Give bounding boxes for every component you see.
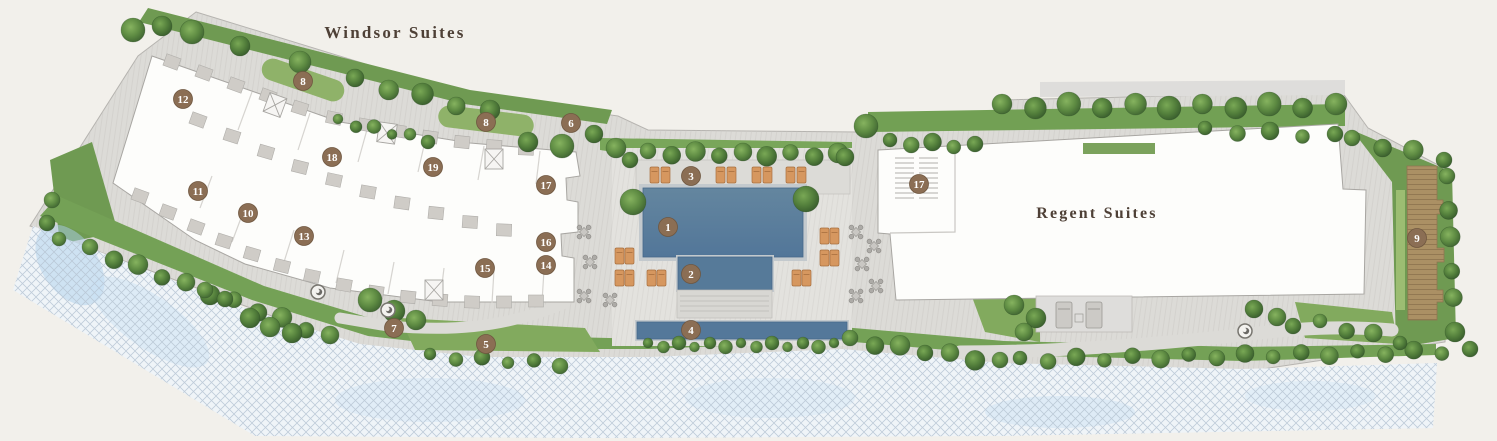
tree — [829, 338, 839, 348]
sun-lounger — [820, 250, 829, 266]
tree — [240, 308, 260, 328]
tree — [690, 342, 700, 352]
tree — [82, 239, 98, 255]
balcony — [428, 206, 444, 220]
balcony — [464, 296, 479, 309]
sun-lounger — [727, 167, 736, 183]
balcony — [400, 290, 416, 304]
spa-circle-core — [385, 307, 389, 311]
tree — [585, 125, 603, 143]
tree — [1157, 96, 1181, 120]
tree — [1344, 130, 1360, 146]
tree — [105, 251, 123, 269]
regent-suites-label: Regent Suites — [1036, 205, 1157, 222]
elevator-core-icon — [425, 280, 443, 300]
tree — [552, 358, 568, 374]
sun-lounger — [820, 228, 829, 244]
tree — [793, 186, 819, 212]
marker-17-number: 17 — [541, 180, 553, 192]
cafe-table-icon — [849, 289, 863, 303]
tree — [1057, 92, 1081, 116]
tree — [1378, 347, 1394, 363]
tree — [783, 342, 793, 352]
tree — [1015, 323, 1033, 341]
tree — [1152, 350, 1170, 368]
marker-5-number: 5 — [483, 339, 489, 351]
tree — [883, 133, 897, 147]
tree — [751, 341, 763, 353]
tree — [1293, 344, 1309, 360]
site-plan-page: 12345678891011121314151617171819 Windsor… — [0, 0, 1497, 441]
tree — [1209, 350, 1225, 366]
tree — [1013, 351, 1027, 365]
tree — [1351, 344, 1365, 358]
tree — [1004, 295, 1024, 315]
hedge-beside-deck — [1396, 190, 1405, 310]
sun-lounger — [752, 167, 761, 183]
cafe-table-icon — [849, 225, 863, 239]
marker-2-number: 2 — [688, 269, 694, 281]
cafe-table-icon — [855, 257, 869, 271]
marker-13-number: 13 — [299, 231, 311, 243]
tree — [121, 18, 145, 42]
tree — [854, 114, 878, 138]
sun-lounger — [625, 270, 634, 286]
marker-7-number: 7 — [391, 323, 397, 335]
marker-14-number: 14 — [541, 260, 553, 272]
sun-lounger — [615, 270, 624, 286]
tree — [686, 142, 706, 162]
sun-lounger — [830, 250, 839, 266]
tree — [941, 344, 959, 362]
tree — [1405, 341, 1423, 359]
sun-lounger — [802, 270, 811, 286]
marker-6-number: 6 — [568, 118, 574, 130]
tree — [52, 232, 66, 246]
tree — [367, 120, 381, 134]
marker-16-number: 16 — [541, 237, 553, 249]
tree — [1436, 152, 1452, 168]
sun-lounger — [615, 248, 624, 264]
tree — [1364, 324, 1382, 342]
marker-18-number: 18 — [327, 152, 339, 164]
cafe-table-icon — [869, 279, 883, 293]
tree — [924, 133, 942, 151]
tree — [606, 138, 626, 158]
balcony — [496, 224, 511, 237]
tree — [1296, 130, 1310, 144]
tree — [1327, 126, 1343, 142]
windsor-suites-label: Windsor Suites — [324, 23, 465, 42]
tree — [947, 140, 961, 154]
tree — [412, 83, 434, 105]
tree — [180, 20, 204, 44]
tree — [550, 134, 574, 158]
tree — [152, 16, 172, 36]
tree — [1268, 308, 1286, 326]
tree — [1236, 345, 1254, 363]
tree — [379, 80, 399, 100]
tree — [289, 51, 311, 73]
tree — [719, 340, 733, 354]
tree — [622, 152, 638, 168]
tree — [992, 94, 1012, 114]
tree — [757, 146, 777, 166]
tree — [1067, 348, 1085, 366]
sun-lounger — [657, 270, 666, 286]
tree — [640, 143, 656, 159]
tree — [1257, 92, 1281, 116]
cafe-table-icon — [577, 225, 591, 239]
tree — [321, 326, 339, 344]
tree — [447, 97, 465, 115]
sun-lounger — [763, 167, 772, 183]
spa-circle-core — [1242, 328, 1246, 332]
tree — [672, 336, 686, 350]
tree — [1435, 347, 1449, 361]
tree — [917, 345, 933, 361]
tree — [663, 146, 681, 164]
tree — [704, 337, 716, 349]
marker-10-number: 10 — [243, 208, 255, 220]
tree — [527, 353, 541, 367]
tree — [333, 114, 343, 124]
tree — [643, 338, 653, 348]
tree — [1339, 323, 1355, 339]
tree — [1440, 227, 1460, 247]
tree — [1393, 336, 1407, 350]
tree — [1097, 353, 1111, 367]
rooftop-hedge — [1083, 143, 1155, 154]
sun-lounger — [797, 167, 806, 183]
tree — [1261, 122, 1279, 140]
tree — [217, 291, 233, 307]
tree — [1225, 97, 1247, 119]
balcony — [454, 135, 470, 149]
tree — [260, 317, 280, 337]
sun-lounger — [650, 167, 659, 183]
tree — [1125, 348, 1141, 364]
tree — [1320, 347, 1338, 365]
tree — [903, 137, 919, 153]
pool-steps — [677, 290, 772, 318]
tree — [424, 348, 436, 360]
marker-15-number: 15 — [480, 263, 492, 275]
balcony — [360, 185, 377, 199]
tree — [1192, 94, 1212, 114]
tree — [805, 148, 823, 166]
tree — [1125, 93, 1147, 115]
marker-19-number: 19 — [428, 162, 440, 174]
cafe-table-icon — [603, 293, 617, 307]
tree — [502, 357, 514, 369]
tree — [1462, 341, 1478, 357]
tree — [358, 288, 382, 312]
balcony — [462, 215, 478, 228]
tree — [1040, 353, 1056, 369]
tree — [1230, 126, 1246, 142]
tree — [406, 310, 426, 330]
terrace-bump — [1036, 296, 1132, 332]
cafe-table-icon — [577, 289, 591, 303]
tree — [421, 135, 435, 149]
tree — [812, 340, 826, 354]
tree — [658, 341, 670, 353]
tree — [797, 337, 809, 349]
tree — [1285, 318, 1301, 334]
tree — [836, 148, 854, 166]
tree — [783, 145, 799, 161]
tree — [1444, 289, 1462, 307]
marker-9-number: 9 — [1414, 233, 1420, 245]
tree — [1182, 348, 1196, 362]
tree — [39, 215, 55, 231]
tree — [1024, 97, 1046, 119]
tree — [1313, 314, 1327, 328]
sun-lounger — [716, 167, 725, 183]
tree — [890, 335, 910, 355]
sun-lounger — [661, 167, 670, 183]
marker-4-number: 4 — [688, 325, 694, 337]
tree — [1266, 350, 1280, 364]
tree — [1403, 140, 1423, 160]
marker-8-number: 8 — [483, 117, 489, 129]
sun-lounger — [830, 228, 839, 244]
tree — [518, 132, 538, 152]
tree — [282, 323, 302, 343]
marker-8-number: 8 — [300, 76, 306, 88]
tree — [1245, 300, 1263, 318]
tree — [1439, 168, 1455, 184]
sun-lounger — [625, 248, 634, 264]
tree — [842, 330, 858, 346]
tree — [230, 36, 250, 56]
site-plan-image: 12345678891011121314151617171819 Windsor… — [0, 0, 1497, 441]
tree — [1293, 98, 1313, 118]
tree — [765, 336, 779, 350]
sun-lounger — [786, 167, 795, 183]
tree — [711, 148, 727, 164]
balcony — [529, 295, 544, 307]
marker-11-number: 11 — [193, 186, 203, 198]
tree — [965, 350, 985, 370]
tree — [1092, 98, 1112, 118]
tree — [1325, 93, 1347, 115]
tree — [1440, 201, 1458, 219]
tree — [620, 189, 646, 215]
tree — [350, 121, 362, 133]
balcony — [497, 296, 512, 308]
tree — [44, 192, 60, 208]
tree — [177, 273, 195, 291]
tree — [387, 129, 397, 139]
tree — [1374, 139, 1392, 157]
tree — [346, 69, 364, 87]
tree — [1445, 322, 1465, 342]
tree — [967, 136, 983, 152]
tree — [992, 352, 1008, 368]
tree — [404, 128, 416, 140]
marker-17-number: 17 — [914, 179, 926, 191]
tree — [1444, 263, 1460, 279]
sun-lounger — [792, 270, 801, 286]
elevator-core-icon — [485, 149, 503, 169]
marker-12-number: 12 — [178, 94, 190, 106]
balcony — [394, 196, 411, 210]
tree — [449, 353, 463, 367]
tree — [734, 143, 752, 161]
spa-circle-core — [315, 289, 319, 293]
tree — [154, 269, 170, 285]
balcony — [336, 278, 353, 292]
tree — [866, 337, 884, 355]
marker-3-number: 3 — [688, 171, 694, 183]
cafe-table-icon — [583, 255, 597, 269]
walk-strip-top-right — [1040, 80, 1345, 97]
tree — [736, 338, 746, 348]
cafe-table-icon — [867, 239, 881, 253]
sun-lounger — [647, 270, 656, 286]
reflecting-pool — [637, 322, 847, 339]
tree — [128, 255, 148, 275]
marker-1-number: 1 — [665, 222, 671, 234]
tree — [197, 282, 213, 298]
tree — [1198, 121, 1212, 135]
